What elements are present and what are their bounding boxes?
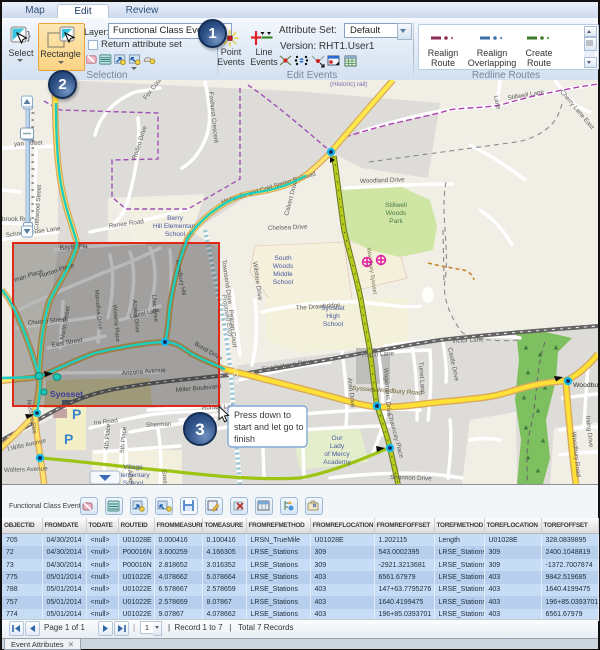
svg-text:}: } [27, 30, 31, 42]
svg-text:Park: Park [389, 218, 403, 225]
svg-text:Berry: Berry [167, 215, 183, 222]
svg-text:Woods: Woods [386, 210, 407, 217]
svg-text:Syosset: Syosset [50, 389, 83, 399]
svg-text:Chelsea Drive: Chelsea Drive [268, 224, 308, 232]
svg-text:Shannon Drive: Shannon Drive [390, 474, 432, 482]
svg-text:Hill Elementary: Hill Elementary [153, 223, 198, 230]
svg-text:High: High [326, 313, 340, 320]
svg-text:School: School [273, 279, 294, 286]
svg-text:School: School [323, 321, 344, 328]
svg-text:Sherman: Sherman [146, 421, 172, 429]
svg-text:Syosset: Syosset [321, 305, 345, 312]
svg-text:Woodbury: Woodbury [573, 382, 598, 389]
svg-text:start and let go to: start and let go to [234, 422, 304, 432]
svg-text:Woods: Woods [273, 263, 294, 270]
svg-text:(Historic) rail): (Historic) rail) [330, 81, 367, 88]
svg-text:Lady: Lady [330, 443, 345, 450]
svg-text:Our: Our [332, 435, 344, 442]
svg-text:finish: finish [234, 434, 255, 444]
svg-text:Village: Village [123, 464, 143, 471]
svg-text:Elementary: Elementary [116, 472, 150, 479]
svg-text:3: 3 [195, 420, 204, 439]
svg-text:Stillwell: Stillwell [385, 202, 408, 209]
svg-text:P: P [72, 406, 81, 422]
svg-text:Academy: Academy [323, 459, 351, 466]
svg-text:Press down to: Press down to [234, 410, 291, 420]
svg-text:School: School [165, 231, 186, 238]
svg-text:P: P [64, 431, 73, 447]
svg-text:South: South [274, 255, 292, 262]
svg-text:Middle: Middle [273, 271, 293, 278]
svg-text:of Mercy: of Mercy [324, 451, 350, 458]
